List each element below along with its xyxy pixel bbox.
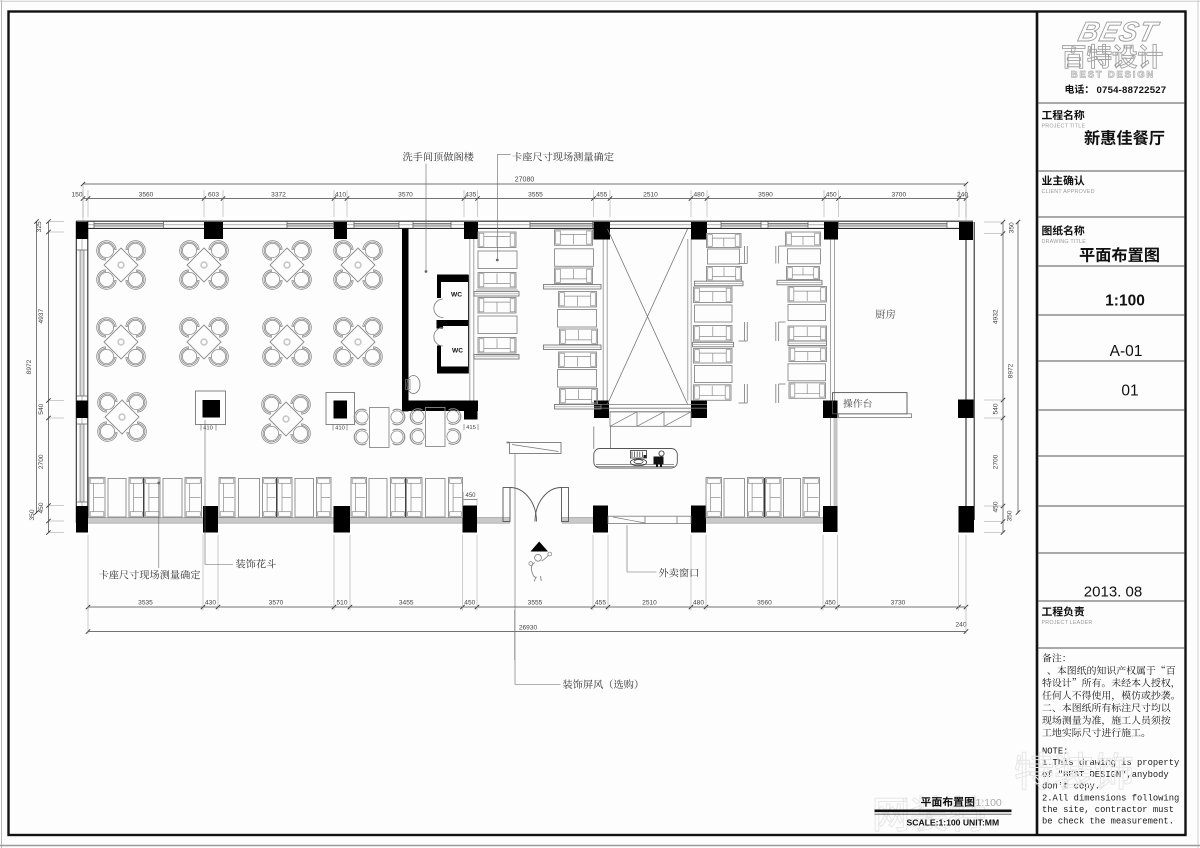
svg-text:DRAWING TITLE: DRAWING TITLE [1042,239,1087,245]
svg-text:3700: 3700 [891,192,906,199]
svg-text:410: 410 [335,192,346,199]
svg-text:410: 410 [203,426,214,432]
svg-text:540: 540 [993,403,1000,414]
svg-text:480: 480 [693,192,704,199]
svg-text:4932: 4932 [993,309,1000,324]
svg-text:PROJECT LEADER: PROJECT LEADER [1042,620,1093,626]
svg-text:3570: 3570 [398,192,413,199]
svg-text:1:100: 1:100 [976,797,1002,809]
svg-text:A-01: A-01 [1110,343,1143,360]
svg-text:SCALE:1:100 UNIT:MM: SCALE:1:100 UNIT:MM [907,818,1000,828]
svg-text:455: 455 [596,192,607,199]
svg-text:350: 350 [29,509,36,520]
svg-text:450: 450 [465,493,476,499]
svg-text:2700: 2700 [38,454,45,469]
svg-text:the site, contractor must: the site, contractor must [1042,805,1174,815]
svg-text:4937: 4937 [38,309,45,324]
svg-text:3455: 3455 [399,600,414,607]
svg-text:PROJECT TITLE: PROJECT TITLE [1042,124,1086,130]
svg-text:2510: 2510 [642,600,657,607]
svg-text:240: 240 [957,192,968,199]
svg-text:2013. 08: 2013. 08 [1084,584,1142,601]
svg-text:240: 240 [955,622,966,629]
svg-text:3560: 3560 [757,600,772,607]
svg-text:3372: 3372 [271,192,286,199]
svg-text:450: 450 [38,502,45,513]
svg-text:350: 350 [1007,510,1014,521]
svg-text:WC: WC [452,347,463,354]
svg-text:don't copy.: don't copy. [1042,782,1100,792]
svg-text:2700: 2700 [993,454,1000,469]
svg-text:450: 450 [825,600,836,607]
svg-text:150: 150 [71,192,82,199]
svg-text:415: 415 [466,425,477,431]
svg-text:3570: 3570 [269,600,284,607]
svg-text:3590: 3590 [758,192,773,199]
svg-text:of "BEST DESIGN",anybody: of "BEST DESIGN",anybody [1042,770,1169,780]
svg-text:410: 410 [335,426,346,432]
svg-text:8972: 8972 [1008,363,1015,378]
svg-text:540: 540 [38,403,45,414]
svg-text:3730: 3730 [891,600,906,607]
svg-text:3560: 3560 [139,192,154,199]
svg-text:435: 435 [465,192,476,199]
svg-text:2510: 2510 [643,192,658,199]
svg-text:3535: 3535 [138,600,153,607]
svg-text:CLIENT APPROVED: CLIENT APPROVED [1042,189,1095,195]
svg-text:325: 325 [36,221,43,232]
svg-text:450: 450 [993,501,1000,512]
svg-text:3555: 3555 [528,600,543,607]
svg-text:603: 603 [208,192,219,199]
svg-text:430: 430 [205,600,216,607]
svg-text:1:100: 1:100 [1105,293,1145,310]
svg-text:480: 480 [693,600,704,607]
svg-text:WC: WC [451,291,462,298]
svg-text:450: 450 [826,192,837,199]
svg-text:0754-88722527: 0754-88722527 [1097,85,1167,96]
svg-text:450: 450 [464,600,475,607]
svg-text:510: 510 [336,600,347,607]
svg-text:be check the measurement.: be check the measurement. [1042,817,1174,827]
svg-text:350: 350 [1009,222,1016,233]
svg-text:8972: 8972 [26,359,33,374]
svg-text:01: 01 [1121,383,1138,400]
svg-text:BEST: BEST [1075,16,1162,47]
svg-text:26930: 26930 [519,625,538,632]
svg-text:2.All dimensions following: 2.All dimensions following [1042,793,1179,803]
svg-text:455: 455 [595,600,606,607]
svg-text:BEST DESIGN: BEST DESIGN [1071,70,1155,81]
svg-text:27080: 27080 [515,177,535,184]
svg-text:3555: 3555 [528,192,543,199]
